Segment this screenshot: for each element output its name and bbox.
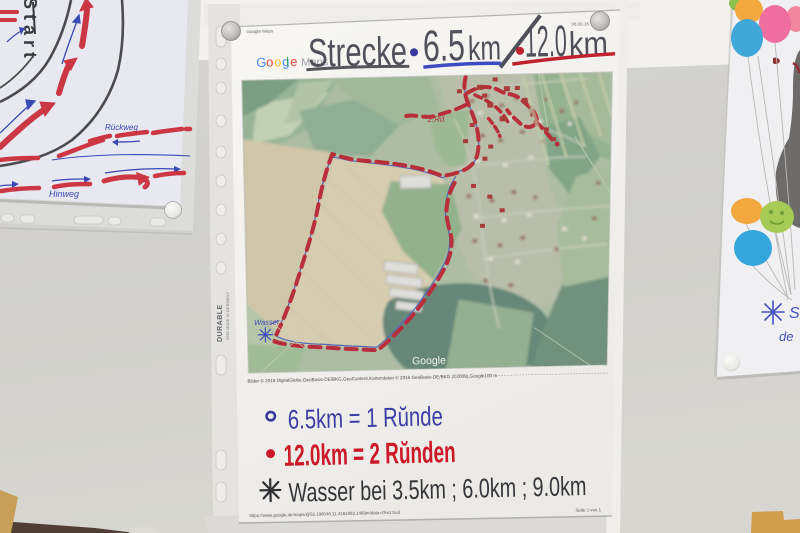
svg-text:Google Maps: Google Maps	[246, 28, 274, 34]
svg-text:2662 MADE IN GERMANY: 2662 MADE IN GERMANY	[225, 292, 230, 340]
svg-text:G: G	[256, 55, 266, 70]
svg-text:l: l	[286, 54, 289, 69]
svg-text:DURABLE: DURABLE	[217, 304, 224, 342]
svg-text:Hinweg: Hinweg	[49, 189, 79, 199]
svg-text:de: de	[779, 329, 793, 344]
svg-text:Rückweg: Rückweg	[105, 123, 138, 132]
svg-text:S: S	[789, 305, 800, 322]
svg-text:e: e	[290, 54, 298, 69]
svg-text:Google: Google	[412, 355, 446, 368]
svg-text:o: o	[266, 54, 274, 69]
svg-text:Seite 1 von 1: Seite 1 von 1	[575, 507, 601, 513]
svg-text:6.5km = 1 Rŭnde: 6.5km = 1 Rŭnde	[287, 401, 443, 435]
svg-text:Start: Start	[20, 0, 40, 63]
svg-text:12.0km = 2 Rŭnden: 12.0km = 2 Rŭnden	[283, 436, 456, 473]
svg-text:o: o	[274, 54, 282, 69]
svg-text:Wasser: Wasser	[254, 317, 280, 327]
svg-text:100 m: 100 m	[484, 373, 497, 378]
